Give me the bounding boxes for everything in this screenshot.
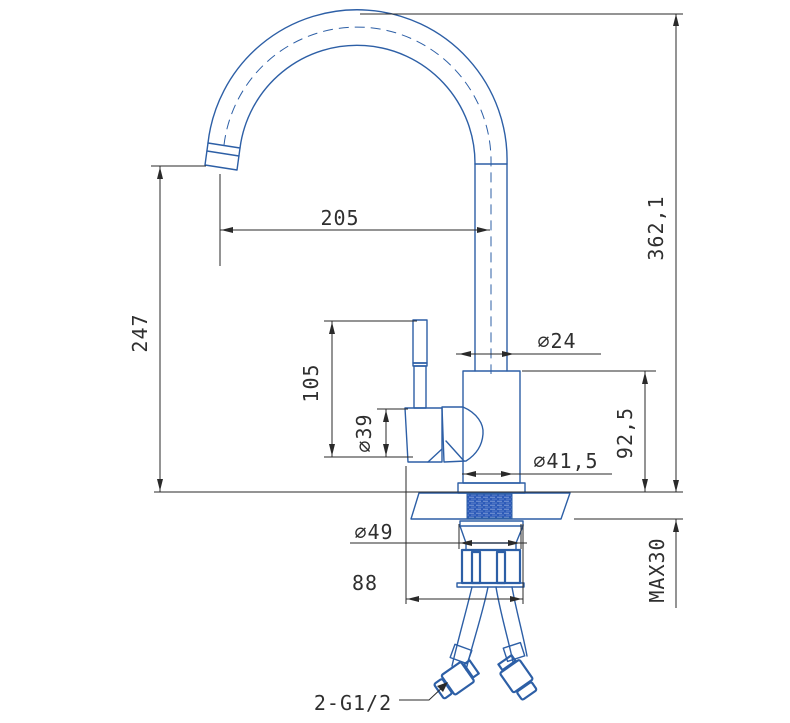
dim-handle-diameter: ∅39 xyxy=(324,409,413,457)
handle-housing-seam xyxy=(446,441,464,461)
callout-hose-thread: 2-G1/2 xyxy=(314,682,448,715)
hose-fitting-left xyxy=(432,657,481,701)
dim-label-handle-diameter: ∅39 xyxy=(352,413,376,452)
washer-and-taper xyxy=(460,521,523,550)
handle-lever-top xyxy=(413,320,427,363)
dim-label-spout-tip-height: 247 xyxy=(128,313,152,352)
faucet-technical-drawing: 362,1 247 205 105 ∅39 ∅24 xyxy=(0,0,790,723)
dim-label-handle-height: 105 xyxy=(299,363,323,402)
mounting-nut xyxy=(457,550,524,587)
dim-spout-tip-height: 247 xyxy=(128,166,206,492)
dim-spout-reach: 205 xyxy=(220,174,490,266)
mixer-body xyxy=(463,371,520,483)
spout-centerline xyxy=(224,27,491,374)
dim-label-max-deck-thickness: MAX30 xyxy=(645,537,669,602)
handle xyxy=(405,320,483,462)
dim-pipe-diameter: ∅24 xyxy=(456,329,601,357)
aerator-tip xyxy=(205,143,240,170)
drawing-page: 362,1 247 205 105 ∅39 ∅24 xyxy=(0,0,790,723)
hose-fitting-right xyxy=(495,653,539,702)
dim-label-body-diameter: ∅41,5 xyxy=(533,449,598,473)
dim-max-deck-thickness: MAX30 xyxy=(574,519,683,608)
dim-label-base-depth: 88 xyxy=(352,571,378,595)
spout-gooseneck xyxy=(205,10,507,374)
handle-base-cut xyxy=(428,449,442,462)
handle-lever-stem xyxy=(414,366,426,408)
dim-body-diameter: ∅41,5 xyxy=(462,449,612,477)
dim-label-hose-thread: 2-G1/2 xyxy=(314,691,392,715)
spout-arc-inner xyxy=(240,45,475,164)
threaded-shank xyxy=(467,494,512,518)
dim-label-shank-diameter: ∅49 xyxy=(354,520,393,544)
dim-label-pipe-diameter: ∅24 xyxy=(537,329,576,353)
dim-shank-diameter: ∅49 xyxy=(350,520,527,549)
dim-label-spout-reach: 205 xyxy=(320,206,359,230)
dim-label-overall-height: 362,1 xyxy=(644,195,668,260)
spout-arc-outer xyxy=(208,10,507,164)
dim-label-body-height: 92,5 xyxy=(613,407,637,459)
